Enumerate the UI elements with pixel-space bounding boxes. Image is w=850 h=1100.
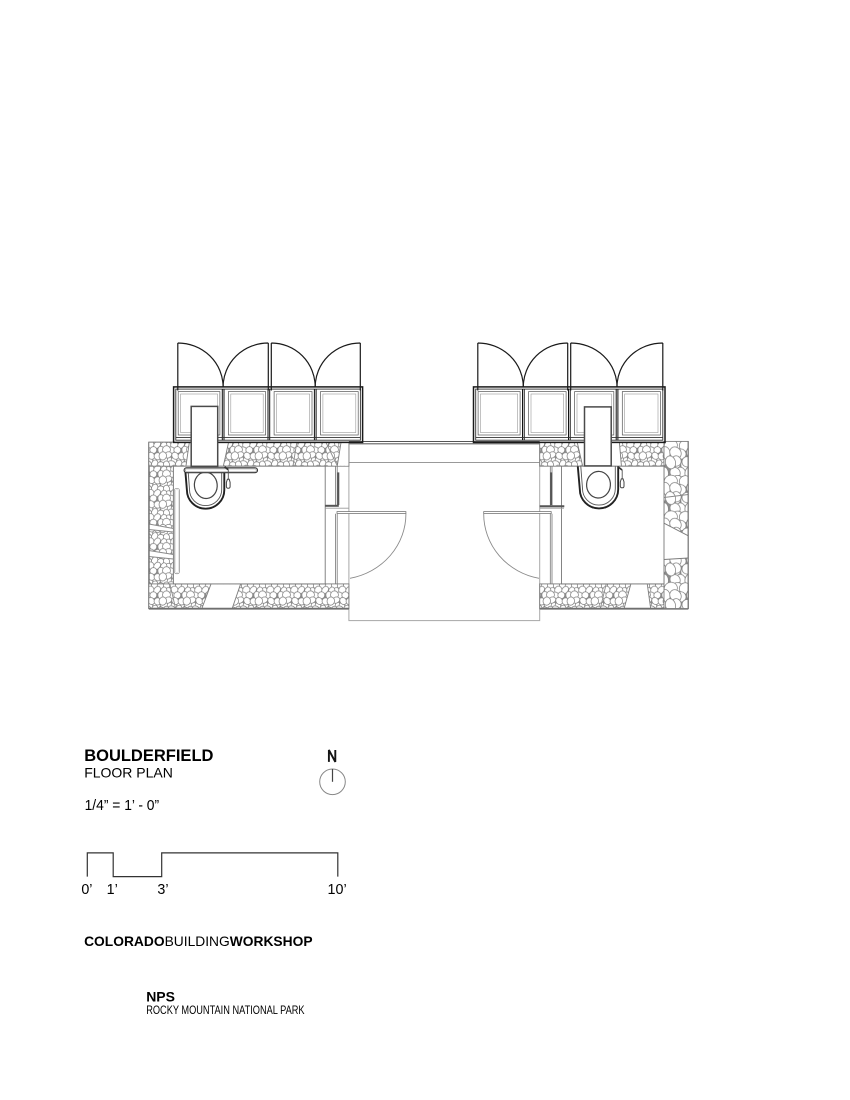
svg-text:FLOOR PLAN: FLOOR PLAN (84, 765, 173, 781)
svg-text:0’: 0’ (81, 882, 92, 898)
svg-text:3’: 3’ (157, 882, 168, 898)
svg-text:10’: 10’ (328, 882, 347, 898)
svg-text:1/4” = 1’ - 0”: 1/4” = 1’ - 0” (85, 797, 160, 814)
svg-text:NPS: NPS (146, 988, 175, 1004)
svg-text:COLORADOBUILDINGWORKSHOP: COLORADOBUILDINGWORKSHOP (84, 934, 312, 949)
svg-text:BOULDERFIELD: BOULDERFIELD (84, 747, 213, 765)
svg-text:ROCKY MOUNTAIN NATIONAL PARK: ROCKY MOUNTAIN NATIONAL PARK (146, 1004, 305, 1017)
svg-text:1’: 1’ (107, 882, 118, 898)
